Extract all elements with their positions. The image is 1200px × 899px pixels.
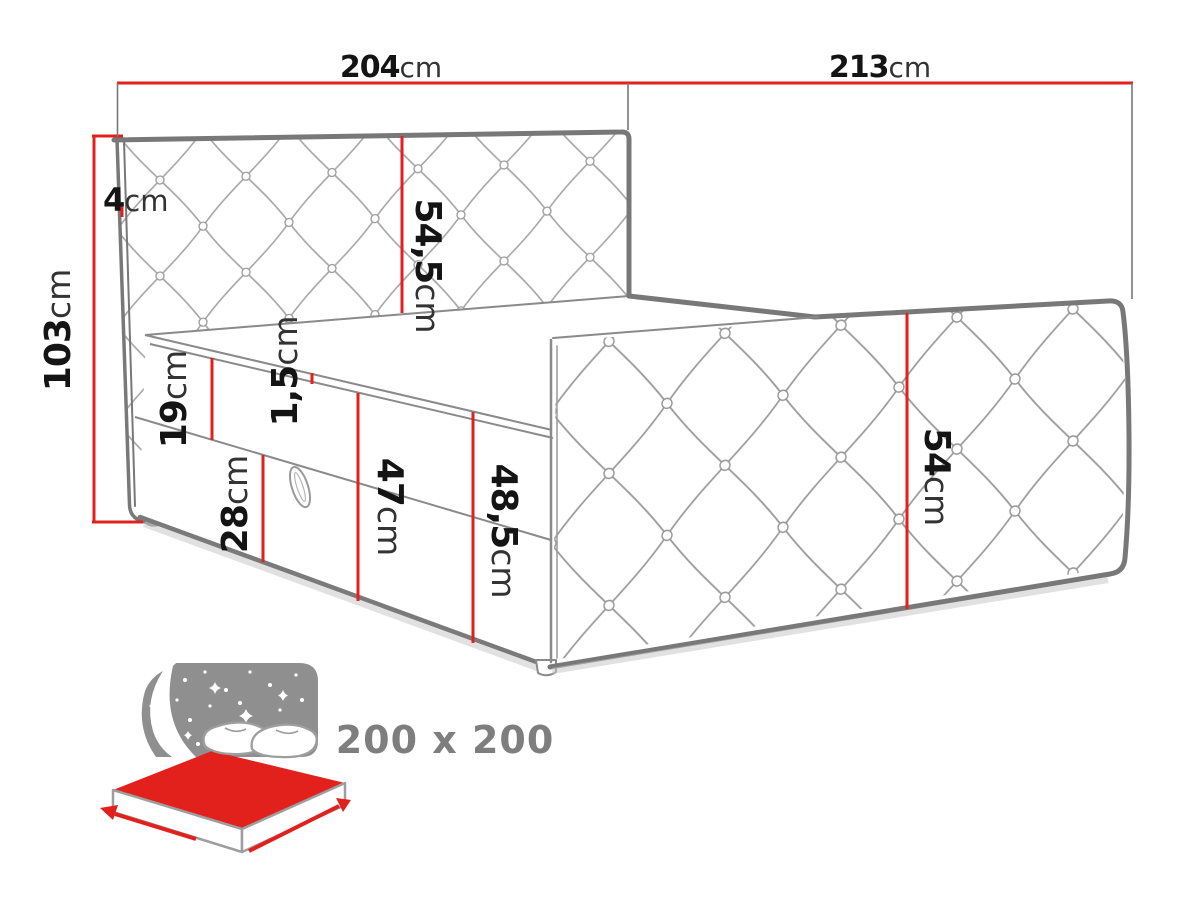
dim-label-topper-top-height: 48,5cm <box>483 463 524 598</box>
dim-label-bed-length: 213cm <box>829 50 931 85</box>
size-label: 200 x 200 <box>336 718 555 762</box>
moon-icon <box>142 671 172 757</box>
dim-label-mattress-height: 19cm <box>154 350 195 448</box>
dim-label-headboard-panel: 54,5cm <box>407 198 448 333</box>
dim-label-topper-height: 1,5cm <box>265 315 306 426</box>
dim-label-side-panel-height: 54cm <box>916 428 957 526</box>
dim-label-sleep-surface-height: 47cm <box>369 458 410 556</box>
dim-label-headboard-width: 204cm <box>340 50 442 85</box>
bed-dimension-diagram: 204cm 213cm 4cm 103cm 1,5cm 19cm 28cm 54… <box>0 0 1200 899</box>
diagram-canvas: 204cm 213cm 4cm 103cm 1,5cm 19cm 28cm 54… <box>0 0 1200 899</box>
dim-label-total-height: 103cm <box>38 269 79 391</box>
dim-label-headboard-edge: 4cm <box>103 181 168 219</box>
bed-drawing <box>100 120 1140 680</box>
pillows-icon <box>204 723 317 758</box>
storage-handle <box>286 465 314 510</box>
dim-label-storage-base-height: 28cm <box>215 455 256 553</box>
bed-size-icon <box>100 663 351 852</box>
